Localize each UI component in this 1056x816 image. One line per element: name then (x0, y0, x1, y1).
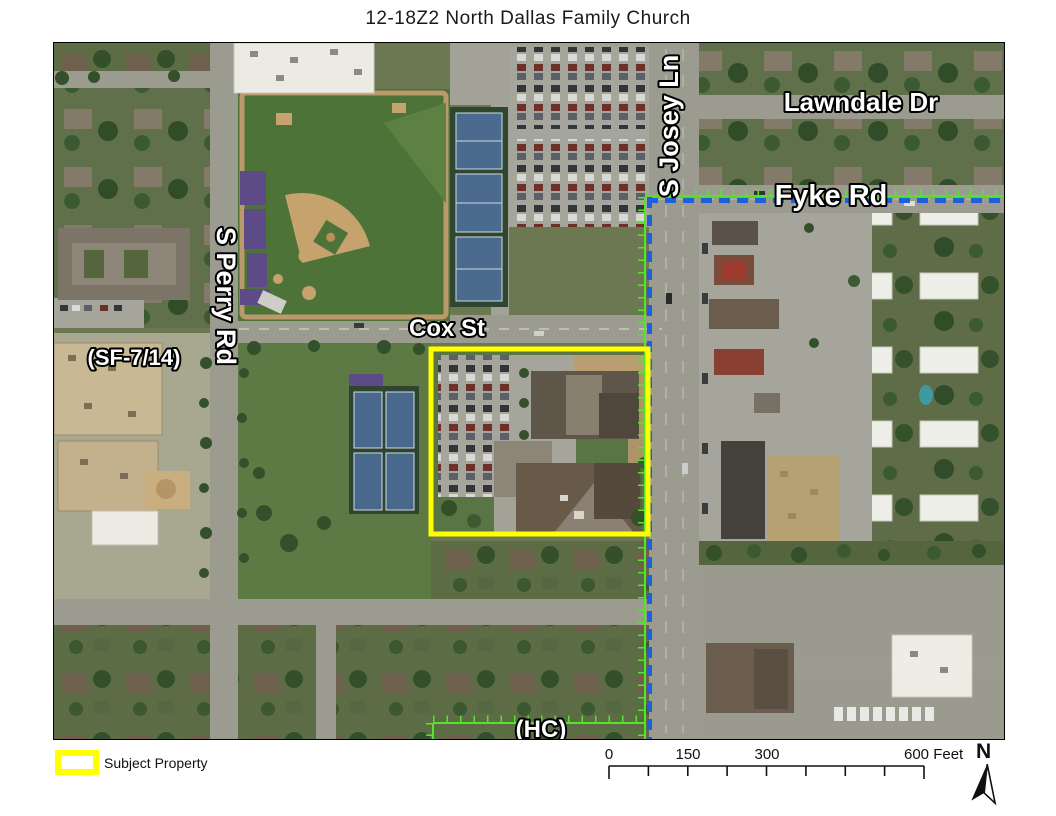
north-arrow: N (952, 740, 1022, 810)
road-top-left (54, 71, 212, 88)
legend-label: Subject Property (104, 755, 208, 771)
road-residential-2 (316, 625, 336, 739)
label-s-josey-ln: S Josey Ln (654, 55, 684, 198)
zoning-map-exhibit: { "title": "12-18Z2 North Dallas Family … (0, 0, 1056, 816)
apartment-pool (919, 385, 933, 405)
scale-tick-0: 0 (605, 746, 613, 763)
road-s-perry (210, 43, 238, 739)
north-label: N (976, 740, 991, 764)
label-zoning-hc: (HC) (516, 716, 567, 739)
label-s-perry-rd: S Perry Rd (211, 227, 241, 365)
baseball-field (238, 89, 450, 321)
subject-property-swatch (55, 750, 99, 775)
label-lawndale-dr: Lawndale Dr (784, 87, 939, 117)
scale-tick-150: 150 (675, 746, 700, 763)
page-title: 12-18Z2 North Dallas Family Church (0, 8, 1056, 30)
tennis-courts-middle (349, 374, 419, 514)
label-fyke-rd: Fyke Rd (775, 180, 888, 212)
school-building-north (234, 43, 374, 93)
subject-property-site (431, 349, 650, 534)
aerial-map: S Josey Ln Lawndale Dr Fyke Rd S Perry R… (53, 42, 1005, 740)
scale-tick-300: 300 (754, 746, 779, 763)
apartment-complex (872, 213, 1004, 541)
tennis-courts-north (450, 107, 508, 307)
label-zoning-sf: (SF-7/14) (88, 345, 181, 370)
apartment-northwest (58, 228, 190, 300)
label-cox-st: Cox St (409, 315, 485, 342)
road-residential-1 (54, 599, 649, 625)
